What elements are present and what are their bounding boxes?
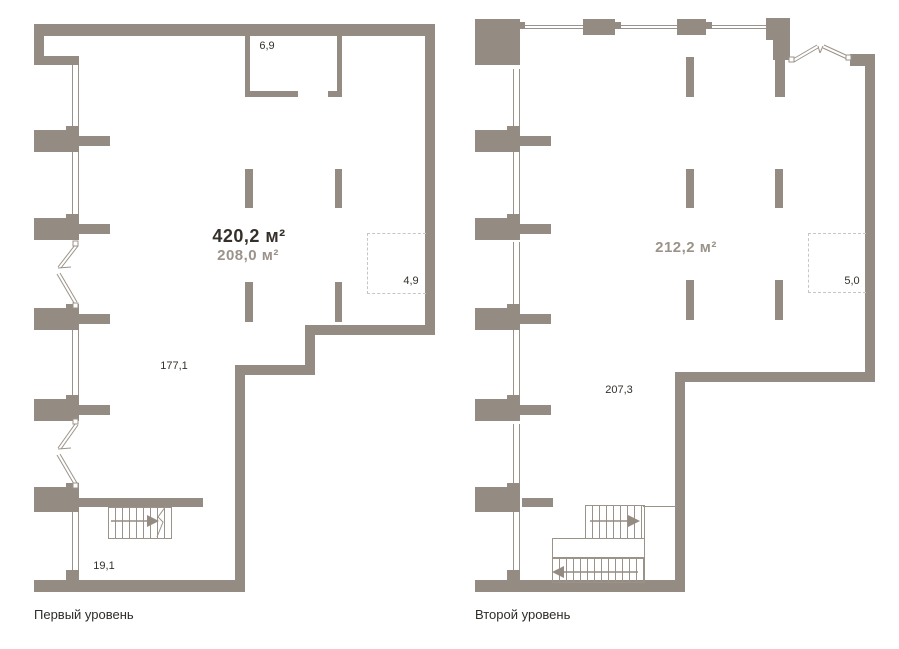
hinge-icon (73, 483, 78, 488)
stair-arrow-right-icon (111, 515, 159, 527)
stair-arrow-right-icon (590, 515, 640, 527)
stair-break-line (157, 506, 166, 537)
floor-plan-canvas: 6,9 420,2 м² 208,0 м² 4,9 177,1 19,1 Пер… (0, 0, 899, 649)
open-door-icon (793, 45, 848, 62)
open-window-icon (57, 245, 78, 303)
open-window-icon (57, 424, 78, 484)
hinge-icon (789, 57, 794, 62)
hinge-icon (73, 241, 78, 246)
stair-arrow-left-icon (552, 566, 638, 578)
plan-symbols-overlay (0, 0, 899, 649)
hinge-icon (846, 55, 851, 60)
hinge-icon (73, 303, 78, 308)
hinge-icon (73, 419, 78, 424)
